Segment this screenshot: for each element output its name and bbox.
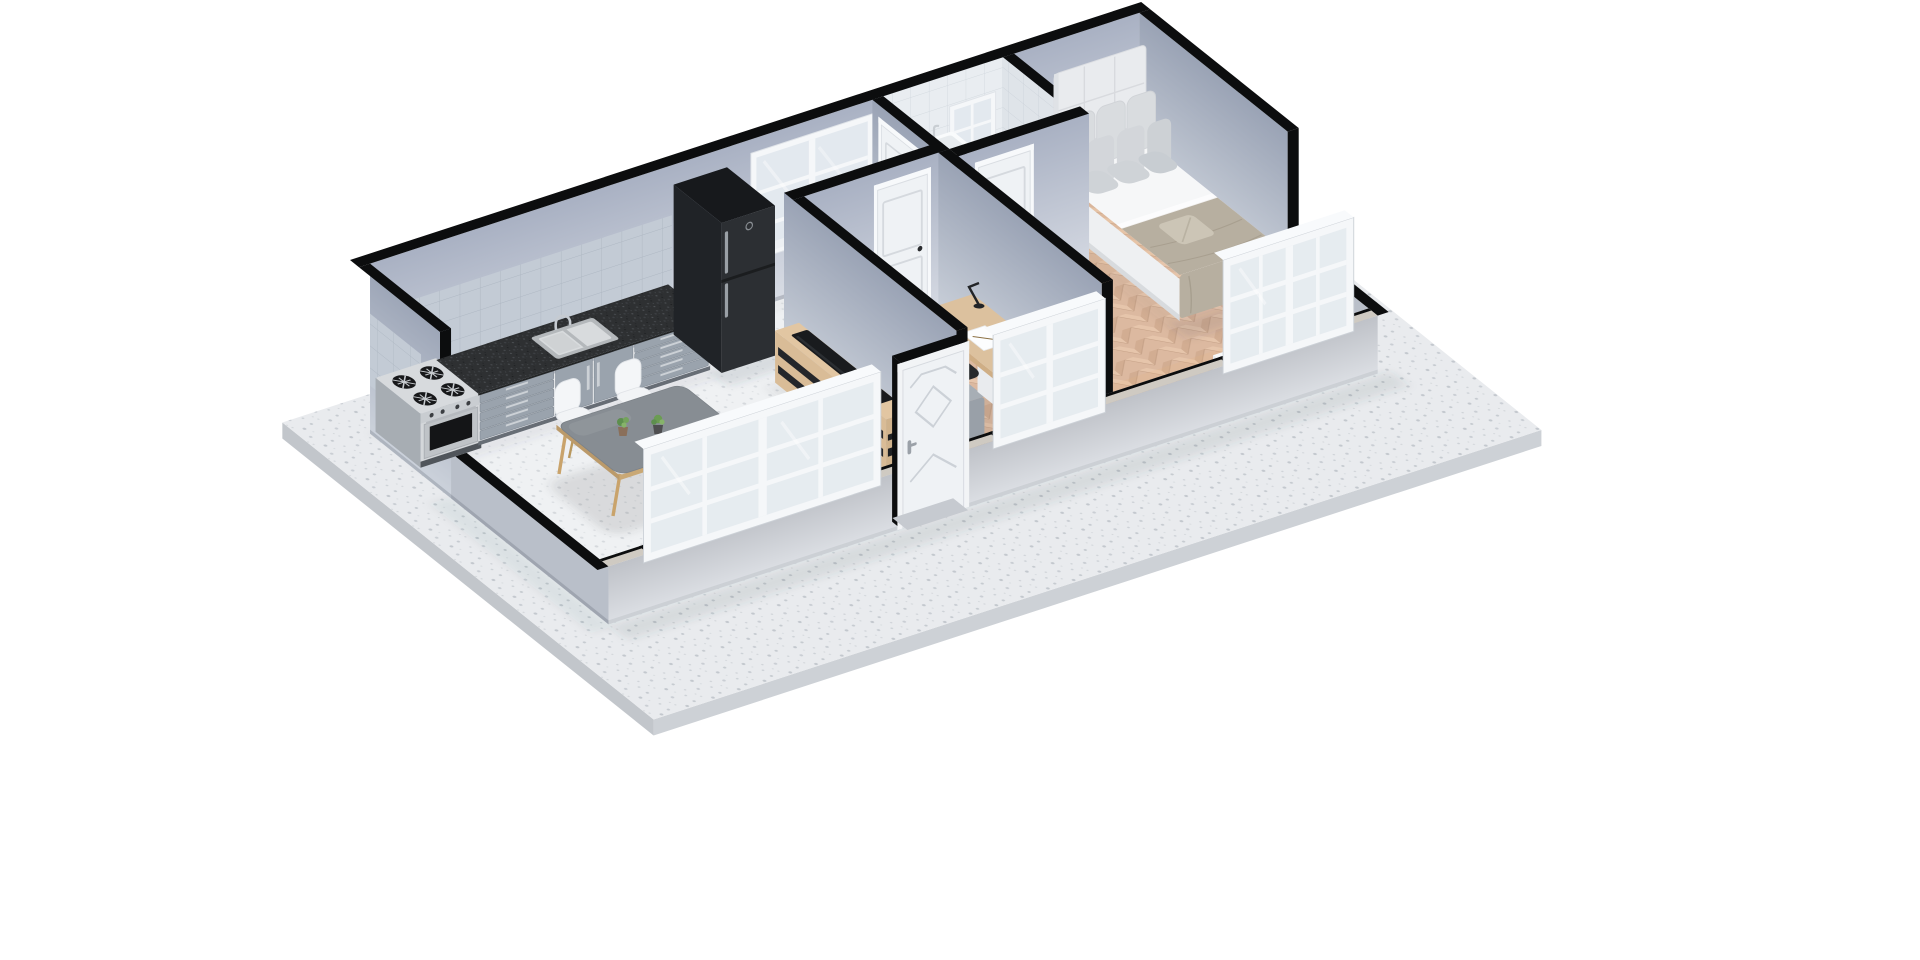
front-facade	[600, 210, 1378, 624]
vanity-top	[902, 148, 994, 194]
tufted-headboard	[1054, 44, 1146, 194]
sink-faucet	[556, 316, 570, 330]
desk	[918, 283, 1060, 436]
floor-living	[370, 317, 956, 617]
cooktop	[376, 358, 482, 414]
window-head-caps	[635, 210, 1354, 449]
door-handle	[912, 221, 916, 229]
right-wall-face	[1139, 13, 1288, 302]
window-post-cuts	[639, 318, 1348, 554]
window-side-cabinet	[1213, 348, 1253, 410]
refrigerator	[674, 167, 775, 373]
facade-sill-wall	[609, 316, 1378, 625]
pillow-white	[811, 297, 879, 328]
right-wall	[1139, 9, 1389, 366]
chair-base	[927, 376, 965, 432]
living-front-window	[644, 372, 881, 563]
window-sill	[743, 210, 877, 257]
front-entrance-door	[897, 341, 969, 530]
dining-chair	[650, 442, 764, 528]
door-handle	[984, 236, 989, 243]
left-sill-wall-face	[451, 440, 609, 624]
interior-floors	[350, 179, 1408, 646]
floor-bathroom	[883, 227, 1069, 319]
gas-stove-oven	[376, 358, 482, 468]
kitchen-counter	[436, 284, 710, 445]
vessel-sink	[918, 126, 975, 277]
granite-countertop	[436, 284, 710, 393]
back-wall	[350, 2, 1150, 434]
bathroom-front-wall	[949, 106, 1089, 326]
pillow-leaning	[810, 255, 856, 316]
desk-area	[918, 283, 1060, 436]
door-threshold	[892, 498, 968, 530]
apartment-3d-floorplan	[0, 0, 1920, 960]
partition-living-wall	[784, 193, 968, 501]
slab-left-edge	[282, 423, 653, 736]
burners	[387, 364, 469, 408]
kitchen-sink	[530, 317, 620, 359]
paper-sheet	[962, 326, 1007, 351]
bathroom-wall-tiles	[883, 57, 1003, 266]
back-wall-cut-top	[350, 2, 1150, 267]
desk-lamp	[969, 283, 985, 309]
bathroom-door	[878, 117, 923, 311]
pillow-row-mid	[1087, 115, 1172, 193]
bathroom-right-wall	[1003, 54, 1089, 288]
door-head-cut	[892, 335, 965, 363]
potted-plants	[617, 415, 666, 452]
dining-chair	[553, 356, 666, 458]
door-handle	[918, 245, 923, 252]
partition-master-left-wall	[938, 149, 1113, 453]
pillow-row-front	[1071, 149, 1182, 196]
dining-set	[553, 356, 764, 528]
small-bedroom-nightstand	[870, 292, 933, 369]
ground-slab	[282, 133, 1541, 736]
smartphone	[905, 309, 918, 315]
slab-front-edge	[654, 430, 1542, 736]
tv-sideboard	[775, 323, 910, 472]
double-bed	[1052, 89, 1275, 321]
front-windows	[644, 217, 1354, 563]
left-wall-step-cut	[440, 328, 451, 444]
table-lamp	[896, 292, 904, 312]
bedroom-small-furniture	[806, 255, 985, 455]
slab-top	[282, 133, 1541, 720]
door-handle	[908, 438, 917, 455]
table-legs	[559, 393, 741, 516]
kitchen	[376, 167, 775, 468]
small-bedroom-front-window	[993, 298, 1105, 449]
hall-back-window	[751, 114, 873, 262]
bathroom-left-wall	[872, 96, 949, 322]
floor-shadows	[350, 179, 1408, 646]
window-light-pool	[930, 414, 1093, 491]
backsplash-tiles	[370, 215, 672, 385]
cabinet-handles	[506, 331, 683, 427]
floor-bedroom-master	[958, 243, 1368, 450]
master-bedroom-door	[975, 144, 1034, 321]
small-bedroom-door	[874, 167, 931, 344]
office-chair	[918, 314, 984, 435]
bathroom-vanity	[902, 126, 994, 283]
window-light-pool	[1082, 322, 1360, 440]
folded-accent-pillow	[1156, 214, 1216, 246]
left-wall	[359, 264, 609, 625]
window-glass	[651, 382, 874, 553]
floorplan-render-canvas	[0, 0, 1920, 960]
facade-cut-top	[600, 464, 902, 567]
back-wall-face	[370, 13, 1139, 434]
fridge-logo	[746, 221, 752, 230]
soundbar	[791, 330, 895, 405]
dining-table	[556, 384, 744, 516]
master-front-window	[1223, 217, 1354, 374]
pillow-row-back	[1066, 89, 1155, 174]
vanity-faucet	[934, 126, 939, 140]
floor-bedroom-small	[804, 323, 1102, 498]
bedroom-small-back-wall	[784, 142, 949, 370]
single-bed	[806, 255, 985, 455]
chair-legs	[569, 402, 666, 458]
left-wall-cut-top	[359, 264, 451, 332]
master-nightstand	[1005, 170, 1067, 251]
right-wall-step-cut	[1288, 128, 1299, 244]
blanket	[1121, 197, 1275, 275]
pencil	[973, 332, 995, 343]
left-wall-face	[370, 264, 451, 499]
floor-hallway	[727, 270, 929, 363]
right-wall-cut-top	[1139, 9, 1299, 131]
pillow-striped	[833, 312, 886, 334]
table-lamp	[1030, 170, 1039, 193]
bedroom-master-furniture	[1005, 44, 1276, 409]
bathroom-back-window	[950, 92, 996, 163]
